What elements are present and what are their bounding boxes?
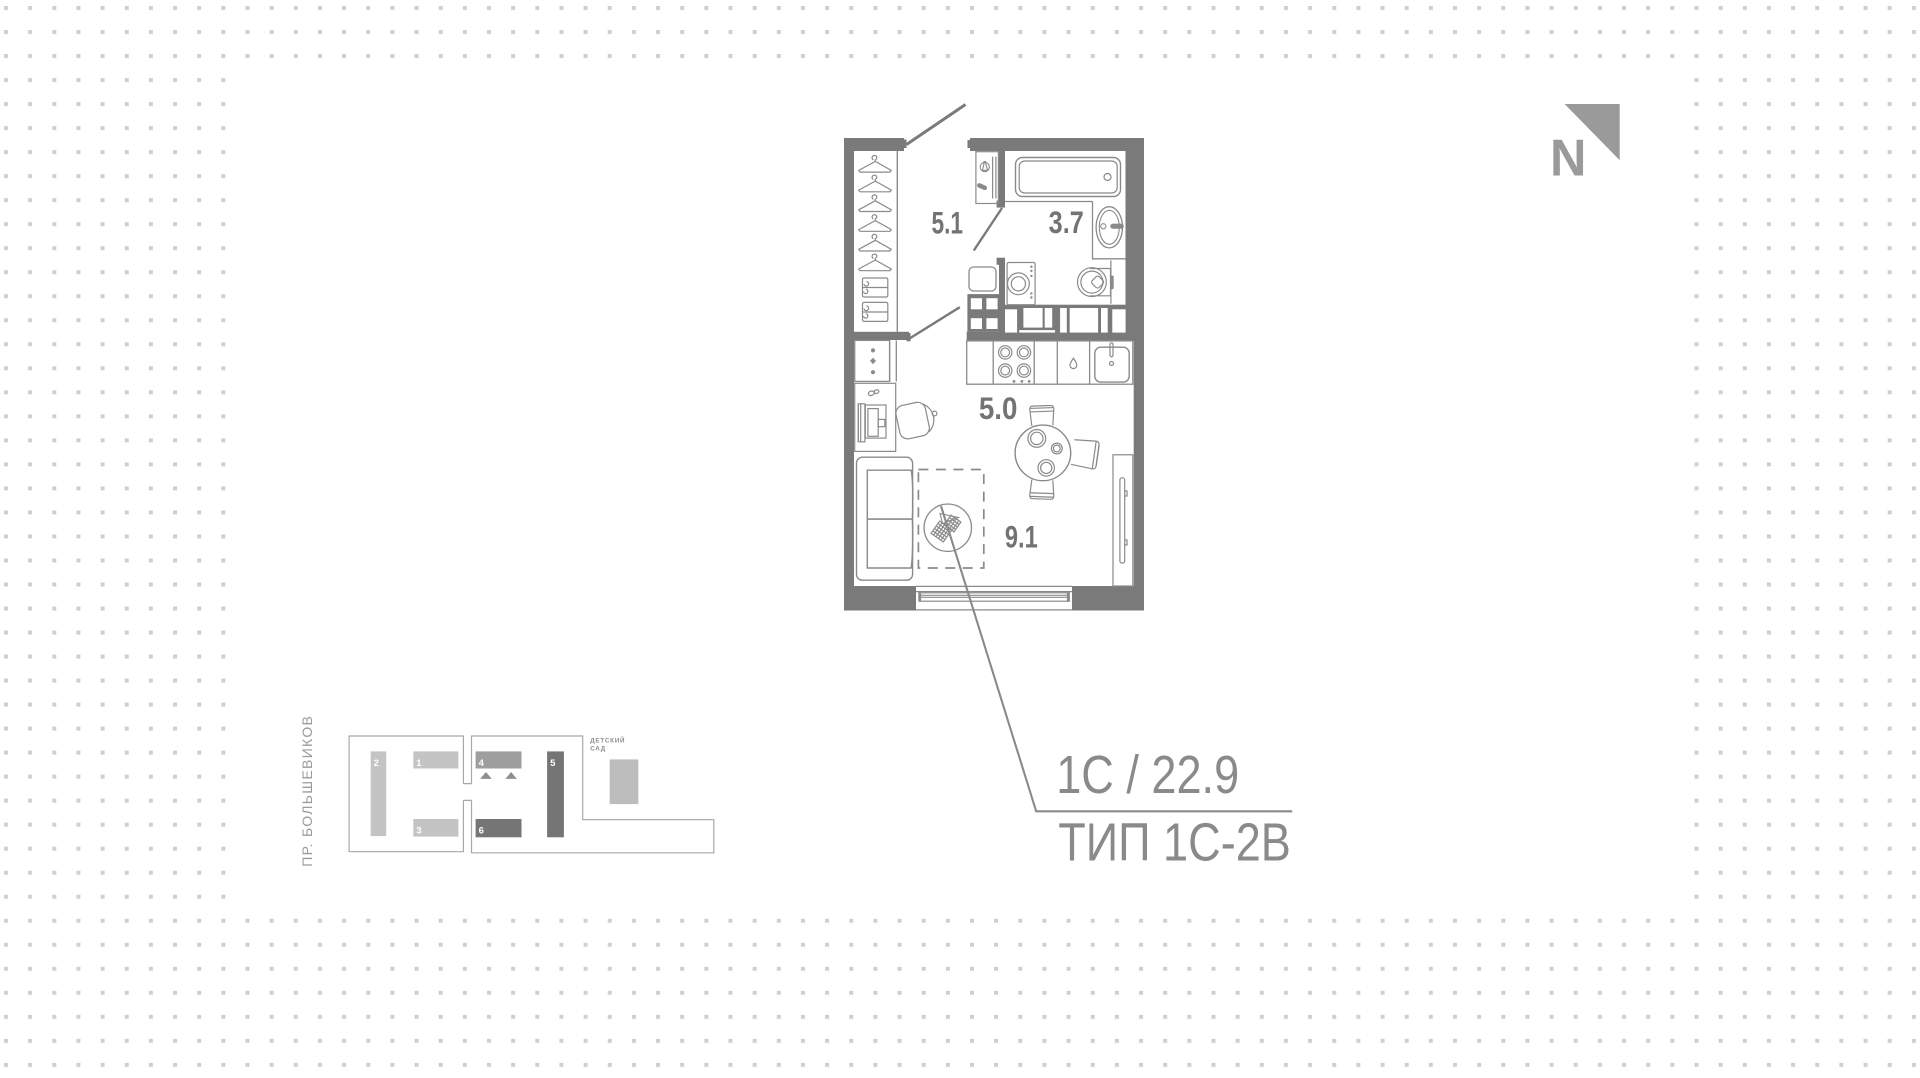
svg-text:ПР. БОЛЬШЕВИКОВ: ПР. БОЛЬШЕВИКОВ xyxy=(299,715,315,867)
svg-text:ДЕТСКИЙ: ДЕТСКИЙ xyxy=(590,737,625,745)
svg-text:1: 1 xyxy=(416,758,422,769)
svg-text:4: 4 xyxy=(479,758,485,769)
svg-text:N: N xyxy=(1550,129,1586,187)
svg-text:ТИП 1С-2В: ТИП 1С-2В xyxy=(1058,812,1291,873)
svg-text:2: 2 xyxy=(374,758,379,769)
svg-text:5.1: 5.1 xyxy=(932,205,964,241)
svg-text:3: 3 xyxy=(416,825,421,836)
svg-text:5.0: 5.0 xyxy=(979,391,1018,426)
svg-text:1С / 22.9: 1С / 22.9 xyxy=(1056,744,1239,805)
svg-text:6: 6 xyxy=(479,825,484,836)
svg-text:9.1: 9.1 xyxy=(1005,519,1038,554)
svg-text:САД: САД xyxy=(590,745,606,752)
svg-text:3.7: 3.7 xyxy=(1049,205,1084,240)
svg-text:5: 5 xyxy=(550,758,556,769)
